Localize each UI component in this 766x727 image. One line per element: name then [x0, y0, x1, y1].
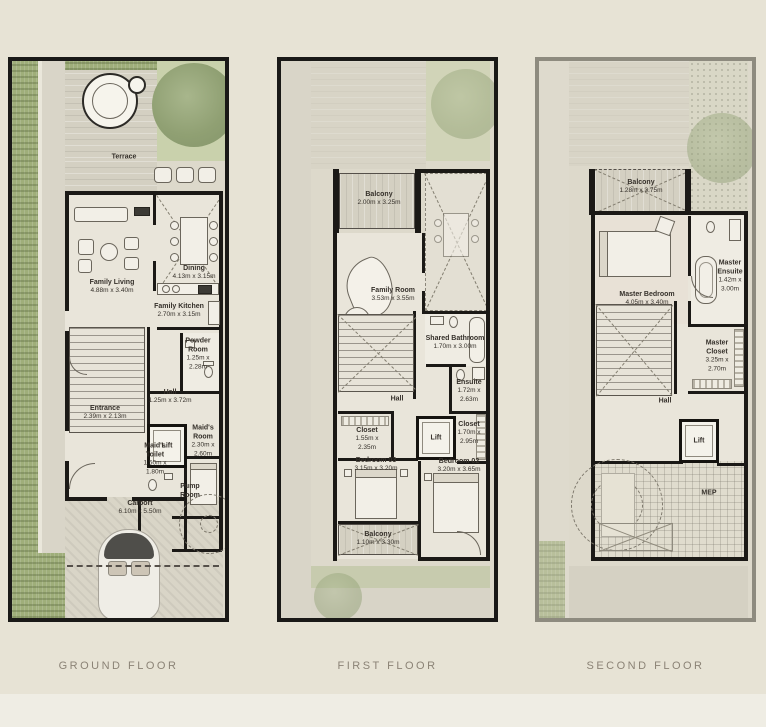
room-label-hall: Hall1.25m x 3.72m — [149, 388, 192, 406]
dining-chair-icon — [209, 237, 218, 246]
wardrobe-icon — [734, 329, 744, 387]
room-label-hall: Hall — [659, 396, 672, 405]
vanity-icon — [729, 219, 741, 241]
wall-segment — [486, 169, 490, 561]
room-label-pump-room: Pump Room — [173, 482, 207, 500]
room-label-terrace: Terrace — [112, 152, 137, 161]
sink-icon — [162, 285, 170, 293]
planter-box-icon — [154, 167, 172, 183]
armchair-icon — [124, 257, 139, 270]
room-label-ensuite: Ensuite1.72m x 2.63m — [452, 378, 486, 404]
wall-segment — [688, 391, 748, 394]
planter-box-icon — [198, 167, 216, 183]
room-label-family-living: Family Living4.88m x 3.40m — [90, 278, 135, 296]
room-label-mep: MEP — [701, 488, 716, 497]
second-floor-plan: Balcony1.28m x 3.75m Master Bedroom4.05m… — [535, 57, 756, 622]
wardrobe-icon — [692, 379, 732, 389]
room-label-master-bedroom: Master Bedroom4.05m x 3.40m — [619, 290, 674, 308]
dining-chair-ghost-icon — [434, 235, 442, 243]
tv-icon — [134, 207, 150, 216]
wall-segment — [685, 169, 691, 215]
toilet-icon — [449, 316, 458, 328]
dining-table-ghost-icon — [443, 213, 469, 257]
room-label-powder-room: Powder Room1.25m x 2.28m — [181, 336, 215, 371]
room-label-family-room: Family Room3.53m x 3.55m — [371, 286, 415, 304]
wall-segment — [147, 327, 150, 427]
dining-chair-icon — [170, 237, 179, 246]
wall-segment — [589, 169, 595, 215]
wardrobe-icon — [341, 416, 389, 426]
coffee-table-icon — [100, 243, 118, 261]
wall-segment — [65, 191, 69, 311]
wall-segment — [157, 327, 221, 330]
room-label-balcony-bottom: Balcony1.10m x 3.30m — [357, 530, 400, 548]
side-path — [42, 61, 65, 618]
wall-segment — [426, 364, 466, 367]
toilet-icon — [706, 221, 715, 233]
wall-segment — [338, 411, 394, 414]
nightstand-icon — [424, 473, 432, 481]
floor-plans-page: Terrace Family Living4.88m x 3.40m Dinin… — [0, 0, 766, 727]
wall-segment — [422, 311, 490, 314]
room-label-family-kitchen: Family Kitchen2.70m x 3.15m — [154, 302, 204, 320]
wall-segment — [65, 191, 223, 195]
armchair-icon — [124, 237, 139, 250]
dining-chair-icon — [209, 221, 218, 230]
sink-icon — [172, 285, 180, 293]
terrace-deck-lower — [65, 161, 157, 191]
footer-band — [0, 694, 766, 727]
first-floor-plan: Balcony2.00m x 3.25m Family Room3.53m x … — [277, 57, 498, 622]
side-path — [281, 61, 311, 618]
wall-segment — [591, 557, 748, 561]
room-label-master-ensuite: Master Ensuite1.42m x 3.00m — [713, 258, 747, 293]
side-path — [539, 61, 569, 618]
wall-segment — [418, 557, 490, 561]
caption-ground-floor: GROUND FLOOR — [8, 660, 229, 672]
room-label-lift: Lift — [431, 433, 442, 442]
wall-segment — [153, 195, 156, 225]
wall-segment — [688, 301, 691, 326]
hedge-strip — [12, 61, 38, 618]
dining-chair-ghost-icon — [434, 219, 442, 227]
tree-ghost-icon — [431, 69, 494, 139]
tree-ghost-icon — [687, 113, 752, 183]
room-label-closet-right: Closet1.70m x 2.95m — [452, 420, 486, 446]
nightstand-icon — [400, 469, 408, 477]
room-label-balcony: Balcony1.28m x 3.75m — [620, 178, 663, 196]
room-label-shared-bathroom: Shared Bathroom1.70m x 3.00m — [426, 334, 485, 352]
wall-segment — [153, 261, 156, 291]
side-table-icon — [78, 239, 94, 255]
first-floor-plot: Balcony2.00m x 3.25m Family Room3.53m x … — [281, 61, 494, 618]
hedge-top — [65, 61, 157, 70]
terrace-deck-ghost — [311, 61, 426, 169]
tree-ghost-icon — [314, 573, 362, 618]
terrace-deck-ghost — [569, 61, 689, 166]
fridge-icon — [208, 301, 220, 325]
side-table-icon — [78, 259, 92, 273]
dining-chair-icon — [170, 221, 179, 230]
wall-segment — [674, 301, 677, 394]
room-label-dining: Dining4.13m x 3.15m — [173, 264, 216, 282]
car-seat-icon — [131, 561, 150, 576]
wall-segment — [422, 291, 425, 313]
dining-chair-ghost-icon — [471, 219, 479, 227]
wall-segment — [333, 233, 337, 561]
planter-box-icon — [176, 167, 194, 183]
room-label-balcony: Balcony2.00m x 3.25m — [358, 190, 401, 208]
room-label-closet-left: Closet1.55m x 2.35m — [350, 426, 384, 452]
planter-small-icon — [128, 76, 146, 94]
room-label-carport: Carport6.10m x 5.50m — [119, 499, 162, 517]
second-floor-plot: Balcony1.28m x 3.75m Master Bedroom4.05m… — [539, 61, 752, 618]
room-label-lift: Lift — [694, 436, 705, 445]
property-dash-line — [67, 565, 219, 567]
wall-segment — [415, 169, 421, 233]
dining-chair-ghost-icon — [471, 235, 479, 243]
hob-icon — [198, 285, 212, 294]
dining-chair-icon — [170, 253, 179, 262]
wall-segment — [688, 324, 748, 327]
wall-segment — [688, 216, 691, 276]
pillow-icon — [190, 463, 217, 470]
hedge-ghost — [539, 541, 565, 618]
room-label-bedroom-03: Bedroom 033.15m x 3.20m — [355, 456, 398, 474]
sofa-icon — [74, 207, 128, 222]
garden-patch-bottom — [38, 553, 65, 618]
caption-first-floor: FIRST FLOOR — [277, 660, 498, 672]
sink-icon — [430, 316, 444, 325]
nightstand-icon — [344, 469, 352, 477]
room-label-maids-room: Maid's Room2.30m x 2.60m — [186, 423, 220, 458]
wall-segment — [422, 233, 425, 273]
room-label-entrance: Entrance2.39m x 2.13m — [84, 404, 127, 422]
wall-segment — [591, 211, 748, 215]
ground-floor-plot: Terrace Family Living4.88m x 3.40m Dinin… — [12, 61, 225, 618]
dining-table-icon — [180, 217, 208, 265]
bed-icon — [599, 231, 671, 277]
wall-segment — [418, 461, 421, 559]
room-label-hall: Hall — [391, 394, 404, 403]
room-label-maids-toilet: Maid's Toilet1.50m x 1.80m — [138, 441, 172, 476]
wall-segment — [65, 497, 107, 501]
path-bottom-ghost — [569, 566, 748, 618]
dining-chair-icon — [209, 253, 218, 262]
room-label-bedroom-02: Bedroom 023.20m x 3.65m — [438, 457, 481, 475]
wall-segment — [391, 411, 394, 458]
wall-segment — [333, 169, 339, 233]
car-seat-icon — [108, 561, 127, 576]
tree-dashed-inner-icon — [200, 515, 218, 533]
room-label-master-closet: Master Closet3.25m x 2.70m — [700, 338, 734, 373]
pillow-icon — [599, 231, 608, 277]
wall-segment — [717, 463, 748, 466]
planter-inner-icon — [92, 83, 128, 119]
caption-second-floor: SECOND FLOOR — [535, 660, 756, 672]
wall-segment — [65, 461, 69, 497]
wall-segment — [421, 169, 490, 173]
toilet-icon — [148, 479, 157, 491]
ground-floor-plan: Terrace Family Living4.88m x 3.40m Dinin… — [8, 57, 229, 622]
